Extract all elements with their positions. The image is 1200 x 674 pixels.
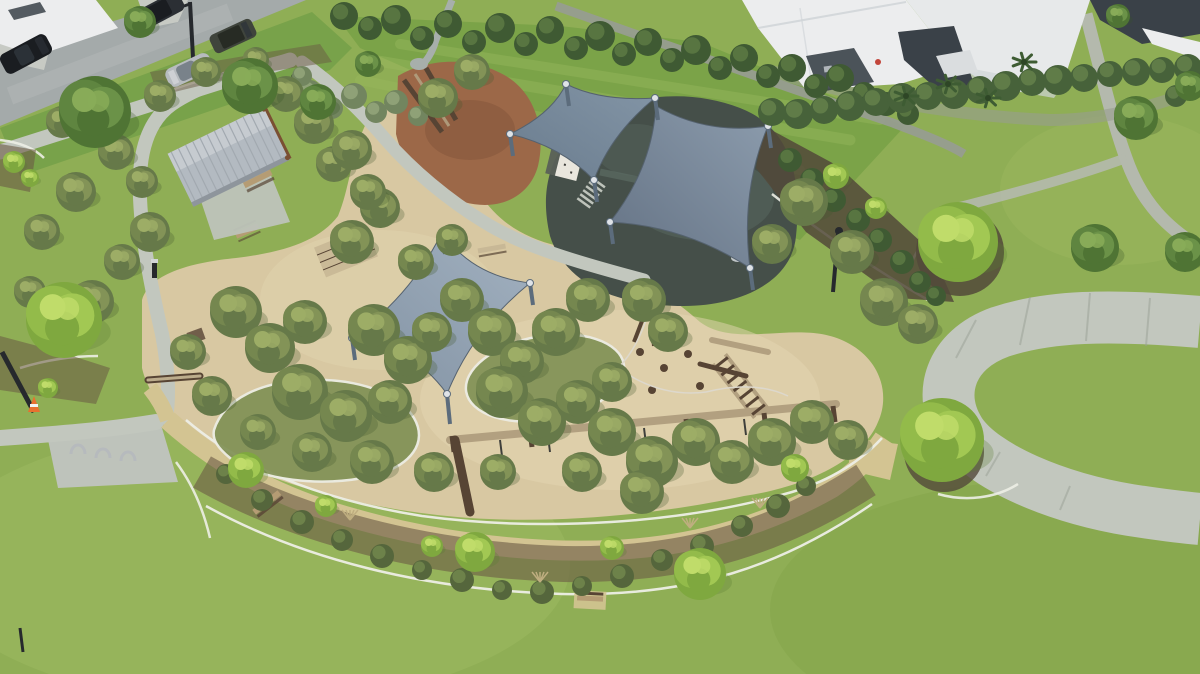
bollard-light: [151, 259, 158, 278]
stump: [684, 350, 692, 358]
tree-highlight: [112, 141, 123, 152]
shrub-highlight: [253, 491, 265, 503]
tree-highlight: [497, 376, 513, 392]
park-scene-canvas: [0, 0, 1200, 674]
shrub-highlight: [437, 12, 452, 27]
shrub-highlight: [892, 252, 905, 265]
tree-highlight: [430, 460, 442, 472]
shrub-highlight: [452, 570, 465, 583]
tree-highlight: [934, 415, 959, 440]
tree-highlight: [146, 220, 158, 232]
tree-highlight: [56, 297, 79, 320]
tree-highlight: [1090, 234, 1104, 248]
shrub-highlight: [733, 517, 745, 529]
tree-highlight: [157, 86, 167, 96]
tree-highlight: [368, 449, 381, 462]
tree-highlight: [647, 446, 663, 462]
shrub-highlight: [294, 68, 305, 79]
shrub-highlight: [761, 100, 776, 115]
shrub-highlight: [532, 582, 545, 595]
tree-highlight: [341, 400, 357, 416]
shrub-highlight: [384, 7, 401, 24]
shrub-highlight: [637, 30, 652, 45]
tree-highlight: [950, 218, 974, 242]
tree-highlight: [386, 389, 399, 402]
shrub-highlight: [464, 32, 477, 45]
tree-highlight: [1132, 105, 1145, 118]
shrub-highlight: [1100, 63, 1114, 77]
shrub-highlight: [372, 546, 385, 559]
creek-pool: [410, 58, 428, 70]
tree-highlight: [46, 382, 52, 388]
shrub-highlight: [1152, 59, 1166, 73]
tree-highlight: [118, 251, 129, 262]
tree-highlight: [487, 318, 501, 332]
tree-highlight: [314, 91, 325, 102]
tree-highlight: [27, 282, 37, 292]
shrub-highlight: [516, 34, 529, 47]
tree-highlight: [244, 69, 261, 86]
tree-highlight: [139, 172, 149, 182]
rect: [152, 262, 157, 278]
shrub-highlight: [218, 466, 229, 477]
shrub-highlight: [969, 78, 984, 93]
tree-highlight: [638, 479, 651, 492]
tree-highlight: [914, 312, 926, 324]
stump: [696, 382, 704, 390]
sail-pole-cap: [527, 280, 534, 287]
tree-highlight: [578, 460, 590, 472]
tree-highlight: [874, 201, 881, 208]
tree-highlight: [308, 440, 320, 452]
shrub-highlight: [994, 73, 1011, 90]
person: [875, 59, 881, 65]
shrub-highlight: [662, 50, 675, 63]
tree-highlight: [324, 499, 331, 506]
palm-center: [985, 95, 991, 101]
shrub-highlight: [566, 38, 579, 51]
shrub-highlight: [684, 37, 701, 54]
shrub-highlight: [612, 566, 625, 579]
tree-highlight: [728, 449, 741, 462]
shrub-highlight: [1021, 70, 1036, 85]
sail-pole-cap: [747, 265, 754, 272]
sail-pole-cap: [563, 81, 570, 88]
shrub-highlight: [781, 56, 796, 71]
shrub-highlight: [653, 551, 665, 563]
shrub-highlight: [813, 98, 828, 113]
shrub-highlight: [333, 4, 348, 19]
tree-highlight: [537, 408, 551, 422]
tree-highlight: [1187, 77, 1196, 86]
tree-highlight: [610, 541, 617, 548]
tree-highlight: [449, 230, 459, 240]
tree-highlight: [879, 288, 893, 302]
shrub-highlight: [494, 582, 505, 593]
tree-highlight: [1181, 240, 1193, 252]
shrub-highlight: [614, 44, 627, 57]
tree-highlight: [799, 188, 813, 202]
tree-highlight: [364, 181, 375, 192]
tree-highlight: [365, 56, 373, 64]
tree-highlight: [574, 389, 587, 402]
rect: [30, 404, 38, 407]
tree-highlight: [137, 12, 147, 22]
tree-highlight: [640, 287, 653, 300]
tree-highlight: [1116, 9, 1123, 16]
palm-center: [903, 93, 909, 99]
palm-center: [945, 81, 951, 87]
tree-highlight: [412, 251, 423, 262]
tree-highlight: [518, 349, 531, 362]
shrub-highlight: [1125, 60, 1140, 75]
stump: [636, 348, 644, 356]
tree-highlight: [348, 229, 361, 242]
tree-highlight: [608, 370, 620, 382]
shrub-highlight: [539, 18, 554, 33]
shrub-highlight: [412, 28, 425, 41]
shrub-highlight: [360, 18, 373, 31]
tree-highlight: [301, 309, 314, 322]
tree-highlight: [551, 318, 565, 332]
shrub-highlight: [829, 66, 844, 81]
shrub-highlight: [292, 512, 305, 525]
tree-highlight: [265, 333, 280, 348]
shrub-highlight: [870, 230, 883, 243]
sail-pole-cap: [652, 95, 659, 102]
tree-highlight: [584, 287, 597, 300]
tree-highlight: [844, 428, 856, 440]
tree-highlight: [691, 428, 705, 442]
tree-highlight: [254, 421, 265, 432]
shrub-highlight: [865, 90, 880, 105]
shrub-highlight: [928, 288, 939, 299]
tree-highlight: [72, 180, 84, 192]
tree-highlight: [471, 540, 483, 552]
shrub-highlight: [768, 496, 781, 509]
shrub-highlight: [414, 562, 425, 573]
tree-highlight: [468, 61, 479, 72]
aerial-photograph: [0, 0, 1200, 674]
shrub-highlight: [780, 150, 793, 163]
tree-highlight: [12, 155, 19, 162]
tree-highlight: [428, 320, 440, 332]
shrub-highlight: [344, 85, 358, 99]
shrub-highlight: [911, 273, 923, 285]
shrub-highlight: [848, 210, 861, 223]
tree-highlight: [430, 539, 437, 546]
shrub-highlight: [386, 92, 399, 105]
tree-highlight: [28, 173, 33, 178]
rect: [151, 259, 158, 263]
tree-highlight: [184, 341, 195, 352]
tree-highlight: [664, 320, 676, 332]
tree-highlight: [767, 428, 781, 442]
shrub-highlight: [410, 108, 421, 119]
sail-pole-cap: [607, 219, 614, 226]
tree-highlight: [792, 460, 800, 468]
shrub-highlight: [574, 578, 585, 589]
tree-highlight: [369, 314, 385, 330]
sail-pole-cap: [444, 391, 451, 398]
scene-root: [0, 0, 1200, 674]
tree-highlight: [695, 558, 711, 574]
shrub-highlight: [838, 93, 855, 110]
shrub-highlight: [588, 23, 605, 40]
shrub-highlight: [1177, 56, 1192, 71]
tree-highlight: [38, 221, 49, 232]
shrub-highlight: [710, 58, 723, 71]
shrub-highlight: [367, 103, 379, 115]
shrub-highlight: [1046, 67, 1063, 84]
tree-highlight: [768, 232, 780, 244]
tree-highlight: [348, 138, 360, 150]
tree-highlight: [607, 418, 621, 432]
tree-highlight: [403, 346, 417, 360]
shrub-highlight: [917, 84, 932, 99]
tree-highlight: [458, 287, 471, 300]
shrub-highlight: [488, 15, 505, 32]
shrub-highlight: [1073, 66, 1088, 81]
shrub-highlight: [758, 66, 771, 79]
shrub-highlight: [786, 101, 803, 118]
tree-highlight: [208, 384, 220, 396]
sail-pole-cap: [507, 131, 514, 138]
tree-highlight: [808, 409, 821, 422]
shrub-highlight: [806, 76, 819, 89]
tree-highlight: [833, 168, 841, 176]
shrub-highlight: [692, 536, 705, 549]
stump: [660, 364, 668, 372]
palm-center: [1021, 59, 1027, 65]
shrub-highlight: [733, 46, 748, 61]
sail-pole-cap: [591, 177, 598, 184]
tree-highlight: [242, 459, 253, 470]
tree-highlight: [88, 90, 110, 112]
shrub-highlight: [333, 531, 345, 543]
tree-highlight: [282, 83, 293, 94]
tree-highlight: [294, 375, 311, 392]
tree-highlight: [494, 461, 505, 472]
tree-highlight: [434, 86, 446, 98]
tree-highlight: [848, 239, 861, 252]
tree-highlight: [231, 296, 247, 312]
tree-highlight: [203, 63, 212, 72]
